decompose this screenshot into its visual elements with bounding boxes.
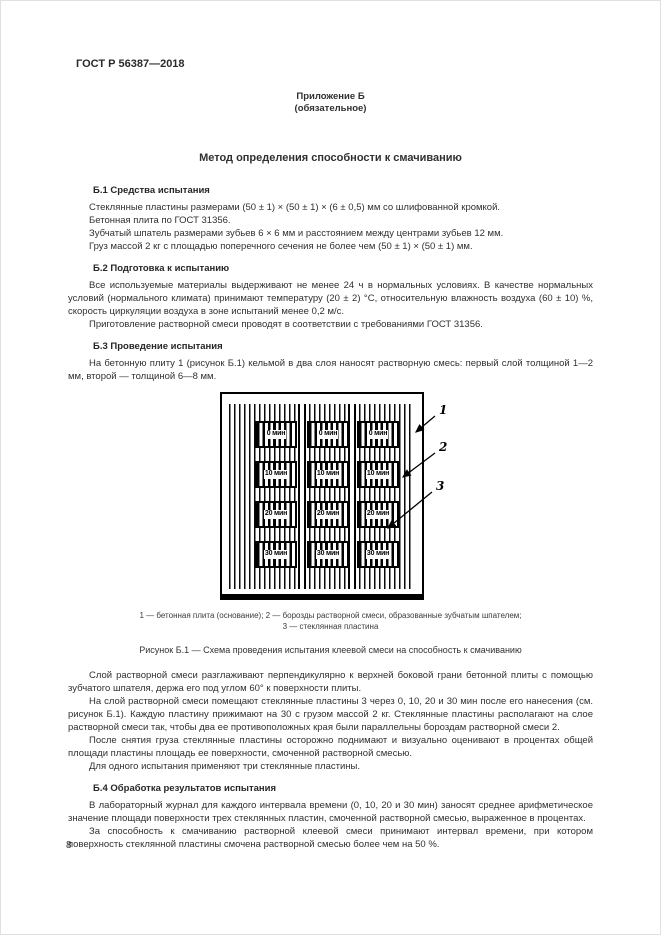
glass-plate: 20 мин <box>357 501 399 528</box>
paragraph: Все используемые материалы выдерживают н… <box>68 279 593 318</box>
plate-time-label: 30 мин <box>264 550 288 559</box>
plate-time-label: 0 мин <box>318 430 339 439</box>
glass-plate: 0 мин <box>255 421 297 448</box>
glass-plate: 30 мин <box>357 541 399 568</box>
glass-plate: 30 мин <box>307 541 349 568</box>
paragraph: За способность к смачиванию растворной к… <box>68 825 593 851</box>
page-content: ГОСТ Р 56387—2018 Приложение Б (обязател… <box>68 58 593 851</box>
glass-plate: 20 мин <box>255 501 297 528</box>
paragraph: Стеклянные пластины размерами (50 ± 1) ×… <box>68 201 593 214</box>
glass-plate: 0 мин <box>307 421 349 448</box>
paragraph: На слой растворной смеси помещают стекля… <box>68 695 593 734</box>
glass-plate: 20 мин <box>307 501 349 528</box>
document-page: ГОСТ Р 56387—2018 Приложение Б (обязател… <box>0 0 661 935</box>
concrete-plate: 0 мин 0 мин 0 мин 10 мин 10 мин 10 мин 2… <box>220 392 424 600</box>
section-heading-b1: Б.1 Средства испытания <box>93 184 593 197</box>
post-figure-paragraphs: Слой растворной смеси разглаживают перпе… <box>68 669 593 773</box>
figure-legend: 1 — бетонная плита (основание); 2 — боро… <box>68 610 593 632</box>
appendix-title: Метод определения способности к смачиван… <box>68 152 593 165</box>
plate-time-label: 30 мин <box>316 550 340 559</box>
plate-time-label: 30 мин <box>366 550 390 559</box>
glass-plate: 10 мин <box>255 461 297 488</box>
appendix-type: (обязательное) <box>68 103 593 115</box>
plate-time-label: 20 мин <box>316 510 340 519</box>
hatch-divider <box>298 404 306 589</box>
glass-plate: 0 мин <box>357 421 399 448</box>
plate-time-label: 10 мин <box>316 470 340 479</box>
plate-time-label: 10 мин <box>366 470 390 479</box>
glass-plate: 10 мин <box>357 461 399 488</box>
paragraph: Приготовление растворной смеси проводят … <box>68 318 593 331</box>
glass-plate: 30 мин <box>255 541 297 568</box>
figure-legend-line1: 1 — бетонная плита (основание); 2 — боро… <box>68 610 593 621</box>
plate-time-label: 20 мин <box>366 510 390 519</box>
figure-legend-line2: 3 — стеклянная пластина <box>68 621 593 632</box>
glass-plate: 10 мин <box>307 461 349 488</box>
section-heading-b4: Б.4 Обработка результатов испытания <box>93 782 593 795</box>
paragraph: После снятия груза стеклянные пластины о… <box>68 734 593 760</box>
hatch-divider <box>348 404 356 589</box>
callout-number-2: 2 <box>438 440 447 454</box>
figure-b1: 0 мин 0 мин 0 мин 10 мин 10 мин 10 мин 2… <box>220 392 472 600</box>
paragraph: Слой растворной смеси разглаживают перпе… <box>68 669 593 695</box>
plate-time-label: 0 мин <box>266 430 287 439</box>
paragraph: Для одного испытания применяют три стекл… <box>68 760 593 773</box>
callout-number-3: 3 <box>436 479 444 493</box>
paragraph: На бетонную плиту 1 (рисунок Б.1) кельмо… <box>68 357 593 383</box>
plate-time-label: 20 мин <box>264 510 288 519</box>
plate-time-label: 0 мин <box>368 430 389 439</box>
paragraph: В лабораторный журнал для каждого интерв… <box>68 799 593 825</box>
paragraph: Груз массой 2 кг с площадью поперечного … <box>68 240 593 253</box>
paragraph: Бетонная плита по ГОСТ 31356. <box>68 214 593 227</box>
section-heading-b2: Б.2 Подготовка к испытанию <box>93 262 593 275</box>
mortar-grooves-hatch: 0 мин 0 мин 0 мин 10 мин 10 мин 10 мин 2… <box>229 404 411 589</box>
callout-number-1: 1 <box>439 403 447 417</box>
figure-caption: Рисунок Б.1 — Схема проведения испытания… <box>68 644 593 656</box>
page-number: 8 <box>66 840 72 851</box>
doc-code: ГОСТ Р 56387—2018 <box>76 58 593 71</box>
paragraph: Зубчатый шпатель размерами зубьев 6 × 6 … <box>68 227 593 240</box>
plate-time-label: 10 мин <box>264 470 288 479</box>
section-heading-b3: Б.3 Проведение испытания <box>93 340 593 353</box>
appendix-label: Приложение Б <box>68 91 593 103</box>
